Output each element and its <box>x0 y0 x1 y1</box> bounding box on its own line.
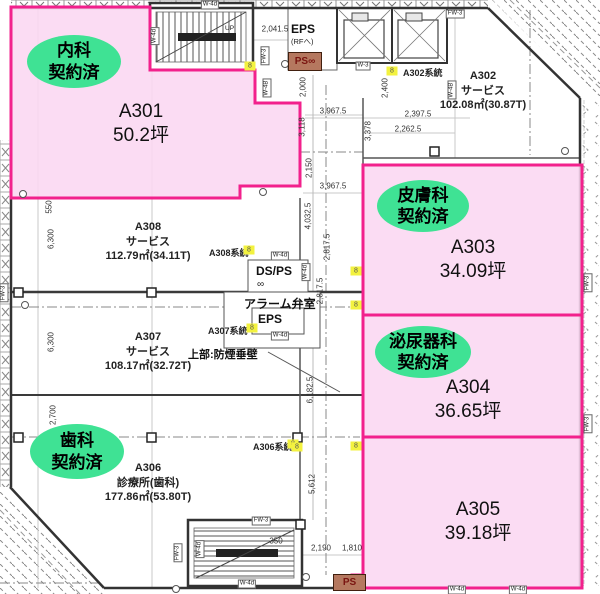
room-area: 177.86㎡(53.80T) <box>105 490 191 505</box>
dimension-label: 350 <box>269 537 282 546</box>
room-area: 102.08㎡(30.87T) <box>440 98 526 113</box>
wall-tag: FW-3 <box>584 415 593 434</box>
suite-size: 50.2坪 <box>113 124 169 148</box>
dimension-label: 3,378 <box>364 121 373 141</box>
room-label-a306: A306 診療所(歯科) 177.86㎡(53.80T) <box>100 458 196 508</box>
suite-id: A303 <box>451 236 495 260</box>
dimension-label: 6,182.5 <box>306 377 315 404</box>
wall-tag: FW-3 <box>446 10 465 19</box>
suite-id: A301 <box>119 100 163 124</box>
wall-tag: W-4d <box>509 586 527 594</box>
ds-ps-label: DS/PS <box>256 264 292 278</box>
room-label-a308: A308 サービス 112.79㎡(34.11T) <box>100 218 196 266</box>
room-use: サービス <box>126 345 170 360</box>
system-label-a302: A302系統 <box>403 66 443 79</box>
suite-size: 39.18坪 <box>445 522 512 546</box>
ps-shaft-bottom: PS <box>333 574 366 591</box>
stairwell-bottom <box>188 520 302 586</box>
stairwell-top <box>150 3 253 70</box>
room-label-a307: A307 サービス 108.17㎡(32.72T) <box>100 328 196 376</box>
infinity-mark: ∞ <box>257 279 264 290</box>
dimension-label: 2,041.5 <box>262 25 289 34</box>
room-area: 112.79㎡(34.11T) <box>105 249 190 264</box>
dimension-label: 2,700 <box>49 405 58 425</box>
room-id: A307 <box>135 330 161 345</box>
contract-badge-a304: 泌尿器科 契約済 <box>375 326 471 378</box>
room-id: A308 <box>135 220 161 235</box>
suite-size: 34.09坪 <box>440 260 507 284</box>
suite-label-a303: A303 34.09坪 <box>428 238 518 282</box>
system-marker-icon: 8 <box>245 62 256 71</box>
dimension-label: 2,817.5 <box>316 278 325 305</box>
corner-hatch-bottomleft <box>0 488 104 594</box>
wall-tag: FW-3 <box>252 517 271 526</box>
suite-id: A305 <box>456 498 500 522</box>
system-marker-icon: 8 <box>292 443 303 452</box>
suite-label-a305: A305 39.18坪 <box>433 500 523 544</box>
contract-badge-a301: 内科 契約済 <box>27 35 121 88</box>
dimension-label: 4,032.5 <box>304 203 313 230</box>
ps-shaft-top: PS∞ <box>288 52 322 71</box>
system-marker-icon: 8 <box>387 67 398 76</box>
system-marker-icon: 8 <box>351 442 362 451</box>
system-marker-icon: 8 <box>351 301 362 310</box>
badge-specialty: 歯科 <box>60 430 94 451</box>
room-id: A302 <box>470 69 496 84</box>
wall-tag: W-4d <box>271 252 289 261</box>
smoke-barrier-label: 上部:防煙垂壁 <box>188 346 258 362</box>
wall-tag: W-4d <box>151 27 160 45</box>
badge-status: 契約済 <box>52 452 103 473</box>
smoke-wall-leader <box>268 352 340 392</box>
wall-tag: W-3 <box>356 62 371 71</box>
suite-id: A304 <box>446 376 490 400</box>
left-window-strip <box>0 140 11 487</box>
suite-label-a304: A304 36.65坪 <box>423 378 513 422</box>
dimension-label: 3,967.5 <box>320 182 347 191</box>
wall-tag: W-4d <box>271 332 289 341</box>
badge-specialty: 泌尿器科 <box>389 331 457 352</box>
eps-roof-label: EPS <box>291 22 315 36</box>
wall-tag: W-4d <box>302 263 311 281</box>
dimension-label: 6,300 <box>47 332 56 352</box>
room-use: サービス <box>461 84 505 99</box>
dimension-label: 3,118 <box>298 117 307 136</box>
dimension-label: 550 <box>45 200 54 213</box>
floor-plan: 内科 契約済 皮膚科 契約済 泌尿器科 契約済 歯科 契約済 A301 50.2… <box>0 0 600 594</box>
wall-tag: W-4d <box>238 580 256 589</box>
room-use: 診療所(歯科) <box>117 476 179 491</box>
elevator-bank <box>337 8 447 63</box>
dimension-label: 3,967.5 <box>320 107 347 116</box>
wall-tag: FW-3 <box>584 274 593 293</box>
room-id: A306 <box>135 461 161 476</box>
eps-mid-label: EPS <box>258 312 282 326</box>
room-area: 108.17㎡(32.72T) <box>105 359 191 374</box>
contract-badge-a303: 皮膚科 契約済 <box>377 180 469 232</box>
badge-status: 契約済 <box>49 62 100 83</box>
wall-tag: W-4d <box>196 540 205 558</box>
wall-tag: W-4d <box>448 586 466 594</box>
wall-tag: W-4B <box>263 79 272 98</box>
badge-specialty: 内科 <box>57 40 91 61</box>
wall-tag: W-4B <box>448 81 457 100</box>
wall-tag: W-4d <box>201 1 219 10</box>
system-marker-icon: 8 <box>247 324 258 333</box>
dimension-label: 2,262.5 <box>395 125 422 134</box>
dimension-label: 2,400 <box>381 78 390 98</box>
badge-status: 契約済 <box>398 206 449 227</box>
wall-tag: FW-3 <box>174 544 183 563</box>
dimension-label: 2,150 <box>305 158 314 178</box>
stair-up-label: UP <box>225 25 234 32</box>
wall-tag: FW-3 <box>0 284 9 303</box>
alarm-valve-room-label: アラーム弁室 <box>244 295 316 312</box>
eps-roof-sublabel: (RFへ) <box>291 36 314 47</box>
suite-size: 36.65坪 <box>435 400 502 424</box>
dimension-label: 2,397.5 <box>405 110 432 119</box>
system-marker-icon: 8 <box>351 267 362 276</box>
dimension-label: 2,190 <box>311 544 331 553</box>
badge-status: 契約済 <box>398 352 449 373</box>
dimension-label: 5,612 <box>308 474 317 494</box>
system-marker-icon: 8 <box>244 246 255 255</box>
wall-tag: FW-3 <box>261 47 270 66</box>
dimension-label: 1,810 <box>342 544 362 553</box>
room-label-a302: A302 サービス 102.08㎡(30.87T) <box>428 68 538 114</box>
badge-specialty: 皮膚科 <box>398 185 449 206</box>
dimension-label: 2,000 <box>299 77 308 97</box>
dimension-label: 6,300 <box>47 229 56 249</box>
room-use: サービス <box>126 235 170 250</box>
suite-label-a301: A301 50.2坪 <box>93 102 189 146</box>
system-label-a307: A307系統 <box>208 324 248 337</box>
right-window-strip <box>582 100 599 586</box>
dimension-label: 2,817.5 <box>323 234 332 261</box>
